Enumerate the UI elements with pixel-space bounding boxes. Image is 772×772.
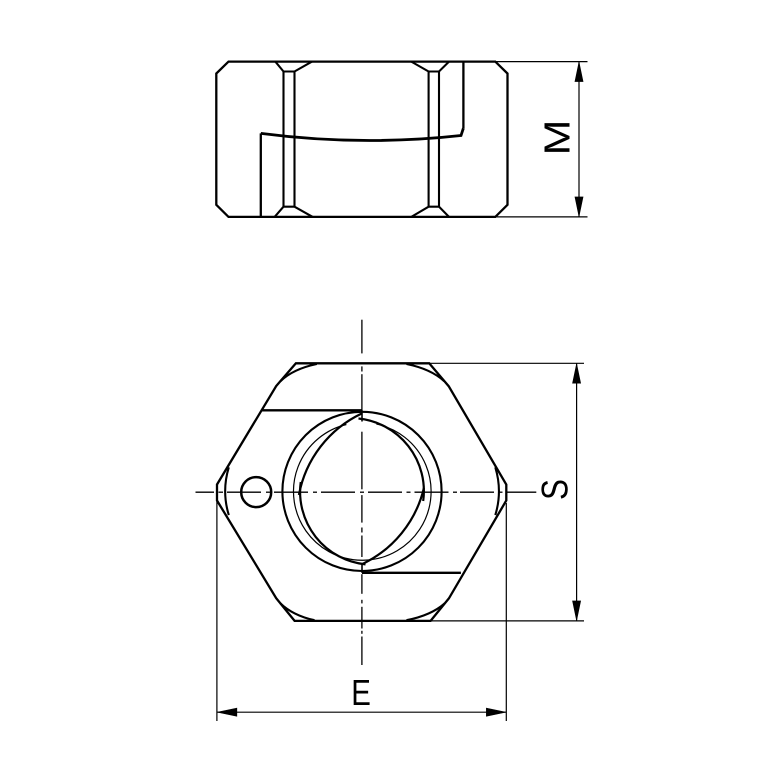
svg-text:S: S — [534, 479, 576, 500]
svg-text:M: M — [537, 120, 578, 156]
svg-text:E: E — [351, 672, 371, 713]
